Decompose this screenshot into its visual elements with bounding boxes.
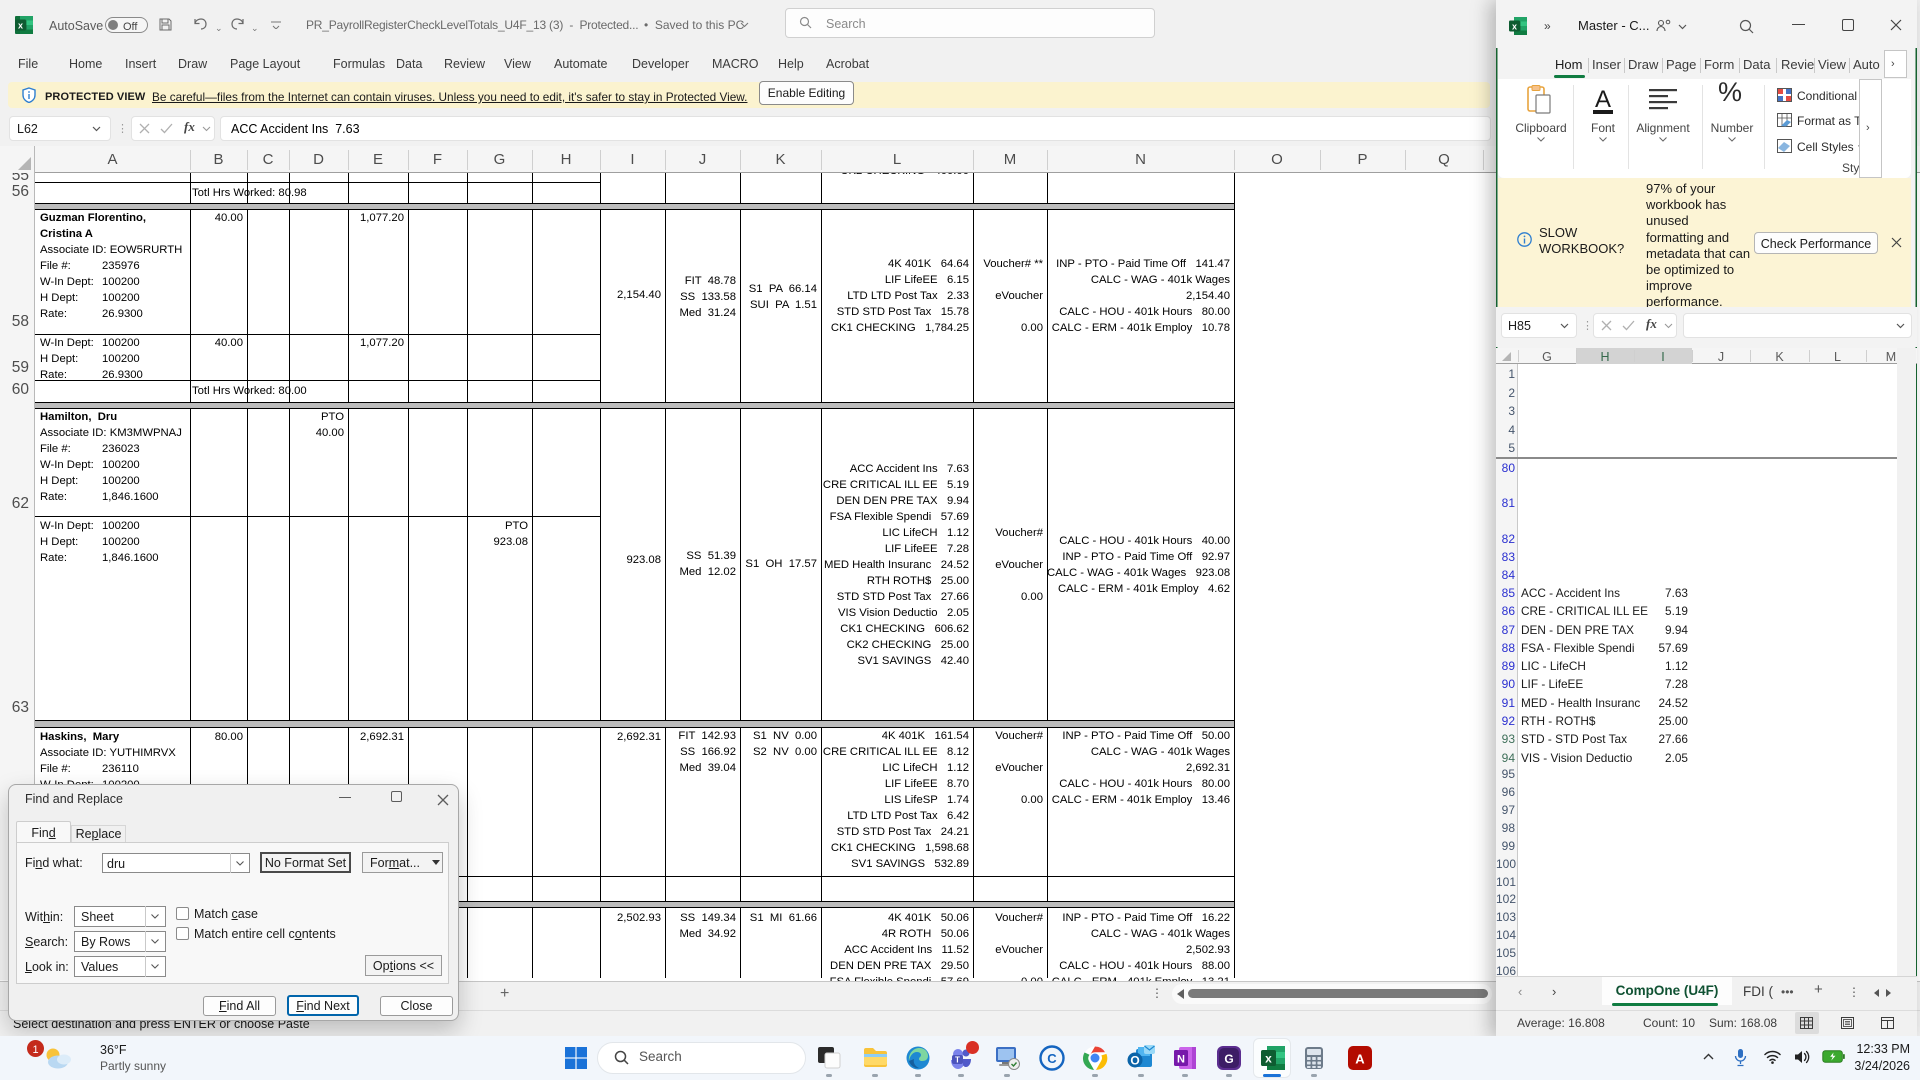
svg-text:C: C — [1047, 1051, 1057, 1066]
svg-text:A: A — [1595, 86, 1611, 113]
svg-text:G: G — [1224, 1052, 1233, 1066]
svg-text:T: T — [955, 1056, 960, 1065]
svg-text:A: A — [1355, 1052, 1365, 1067]
svg-text:x: x — [18, 20, 23, 30]
svg-text:O: O — [1130, 1054, 1139, 1068]
svg-text:x: x — [1512, 21, 1517, 31]
svg-text:N: N — [1177, 1054, 1185, 1066]
svg-text:x: x — [1265, 1052, 1272, 1066]
